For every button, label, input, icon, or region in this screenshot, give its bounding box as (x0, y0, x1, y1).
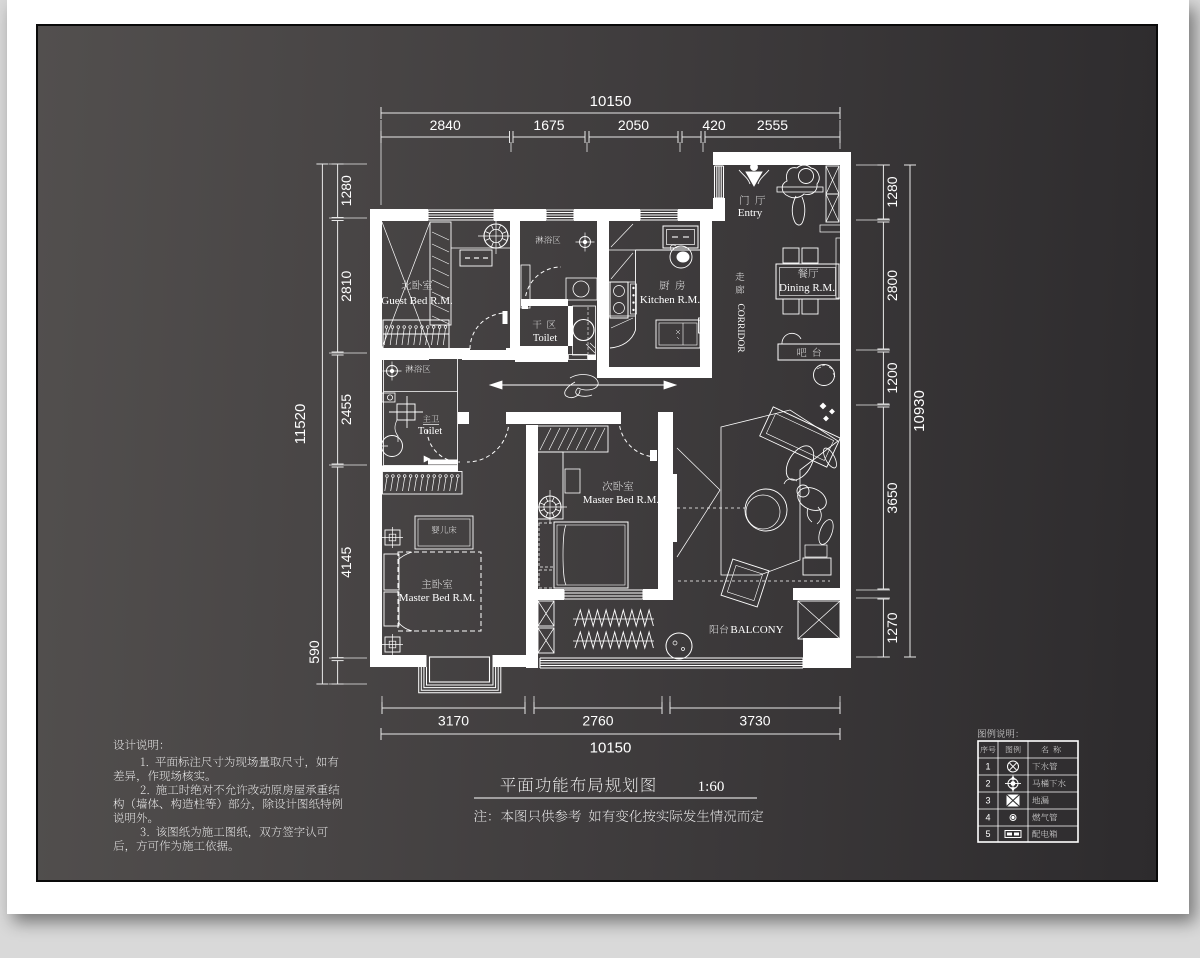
svg-text:1675: 1675 (533, 117, 564, 133)
svg-text:Master Bed R.M.: Master Bed R.M. (399, 592, 476, 604)
svg-text:1: 1 (985, 762, 990, 772)
svg-text:1270: 1270 (884, 612, 900, 643)
svg-text:CORRIDOR: CORRIDOR (735, 303, 745, 353)
svg-text:2800: 2800 (884, 270, 900, 301)
svg-text:11520: 11520 (292, 404, 309, 445)
svg-text:2: 2 (985, 779, 990, 789)
svg-text:Kitchen R.M.: Kitchen R.M. (640, 294, 700, 306)
svg-text:1280: 1280 (338, 175, 354, 206)
svg-text:4: 4 (985, 813, 990, 823)
svg-text:590: 590 (306, 640, 322, 664)
svg-text:2050: 2050 (618, 117, 649, 133)
svg-text:Guest Bed R.M.: Guest Bed R.M. (381, 295, 453, 307)
svg-text:3730: 3730 (739, 713, 770, 729)
svg-text:BALCONY: BALCONY (730, 624, 783, 636)
svg-text:3: 3 (985, 796, 990, 806)
svg-text:Dining R.M.: Dining R.M. (779, 282, 835, 294)
svg-text:2455: 2455 (338, 394, 354, 425)
svg-text:4145: 4145 (338, 547, 354, 578)
svg-text:10930: 10930 (911, 390, 928, 432)
svg-text:3170: 3170 (438, 713, 469, 729)
svg-text:2760: 2760 (582, 713, 613, 729)
svg-text:420: 420 (702, 117, 726, 133)
svg-text:1:60: 1:60 (698, 779, 725, 795)
svg-text:Toilet: Toilet (418, 426, 442, 437)
svg-text:10150: 10150 (590, 93, 632, 110)
svg-text:2555: 2555 (757, 117, 788, 133)
svg-text:2810: 2810 (338, 270, 354, 301)
svg-text:Master Bed R.M.: Master Bed R.M. (583, 494, 660, 506)
svg-text:1200: 1200 (884, 362, 900, 393)
svg-text:2840: 2840 (430, 117, 461, 133)
svg-text:1280: 1280 (884, 176, 900, 207)
svg-text:3650: 3650 (884, 482, 900, 513)
svg-text:10150: 10150 (590, 740, 632, 757)
svg-text:Entry: Entry (738, 207, 763, 219)
svg-text:Toilet: Toilet (533, 333, 557, 344)
svg-text:5: 5 (985, 829, 990, 839)
